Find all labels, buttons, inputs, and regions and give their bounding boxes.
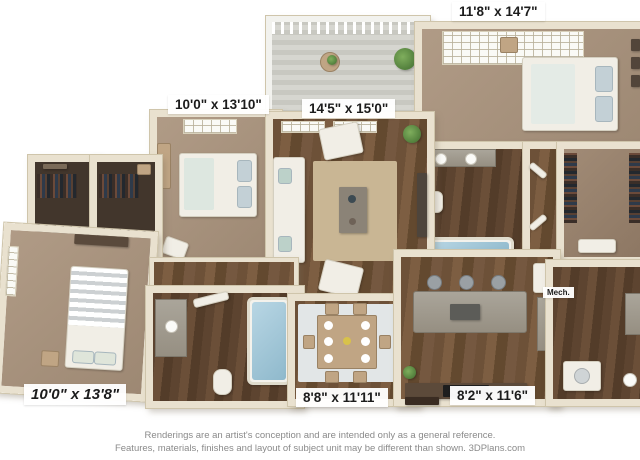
- dining-chair: [379, 335, 391, 349]
- kitchen: [394, 250, 560, 406]
- dining-chair: [353, 371, 367, 383]
- disclaimer-line-2: Features, materials, finishes and layout…: [0, 442, 640, 455]
- nightstand: [41, 350, 60, 367]
- disclaimer: Renderings are an artist's conception an…: [0, 429, 640, 455]
- closet-bench: [578, 239, 616, 253]
- label-master-bedroom: 11'8" x 14'7": [452, 2, 545, 21]
- hanging-clothes: [629, 153, 640, 223]
- armchair: [318, 121, 364, 161]
- bedroom2-bed: [179, 153, 257, 217]
- sink-basin: [435, 153, 447, 165]
- mech-laundry-room: [546, 260, 640, 406]
- bar-stool: [491, 275, 506, 290]
- patio-plant: [327, 55, 337, 65]
- kitchen-island: [413, 291, 527, 333]
- bedroom3-window: [5, 246, 19, 297]
- island-sink: [450, 304, 480, 320]
- door-leaf: [528, 161, 548, 179]
- label-kitchen: 8'2" x 11'6": [450, 386, 535, 405]
- dresser: [74, 234, 129, 247]
- vanity-counter: [155, 299, 187, 357]
- storage-box: [137, 164, 151, 175]
- label-bedroom-2: 10'0" x 13'10": [168, 95, 269, 114]
- label-living-room: 14'5" x 15'0": [302, 99, 395, 118]
- dining-chair: [353, 303, 367, 315]
- utility-sink: [623, 373, 637, 387]
- sofa: [273, 157, 305, 263]
- wall-art-frame: [631, 57, 640, 69]
- sink-basin: [165, 320, 178, 333]
- closet-shelf: [43, 164, 67, 169]
- bedroom3-bed: [65, 266, 129, 371]
- dining-chair: [325, 303, 339, 315]
- floor-plan: 11'8" x 14'7" 10'0" x 13'10" 14'5" x 15'…: [0, 0, 640, 418]
- toilet: [213, 369, 232, 395]
- bedroom2-window: [183, 119, 237, 134]
- bedroom-2: [150, 110, 282, 270]
- label-mech-closet: Mech.: [543, 287, 574, 298]
- label-bedroom-3: 10'0" x 13'8": [24, 384, 126, 405]
- dining-table: [317, 315, 377, 369]
- tv-console: [417, 173, 427, 237]
- entry-doorway: [405, 397, 439, 405]
- master-bed: [522, 57, 618, 131]
- door-leaf: [528, 213, 548, 231]
- living-plant: [403, 125, 421, 143]
- nightstand: [500, 37, 518, 53]
- towel-shelf: [192, 291, 229, 308]
- disclaimer-line-1: Renderings are an artist's conception an…: [0, 429, 640, 442]
- coffee-table: [339, 187, 367, 233]
- accent-chair: [161, 235, 190, 260]
- bathtub: [247, 297, 291, 385]
- kitchen-plant: [403, 366, 416, 379]
- balcony-potted-plant: [394, 48, 416, 70]
- bar-stool: [427, 275, 442, 290]
- bar-stool: [459, 275, 474, 290]
- wall-art-frame: [631, 75, 640, 87]
- sink-basin: [465, 153, 477, 165]
- bathroom-2: [146, 286, 304, 408]
- hanging-clothes: [99, 174, 139, 198]
- washer: [563, 361, 601, 391]
- wall-art-frame: [631, 39, 640, 51]
- label-dining-room: 8'8" x 11'11": [296, 388, 388, 407]
- master-bedroom: [415, 22, 640, 156]
- utility-shelf: [625, 293, 640, 335]
- dining-chair: [325, 371, 339, 383]
- bedroom-3: [0, 223, 158, 402]
- hanging-clothes: [37, 174, 77, 198]
- dining-chair: [303, 335, 315, 349]
- hanging-clothes: [564, 153, 577, 223]
- walkin-closet: [557, 142, 640, 264]
- balcony-railing: [272, 22, 424, 34]
